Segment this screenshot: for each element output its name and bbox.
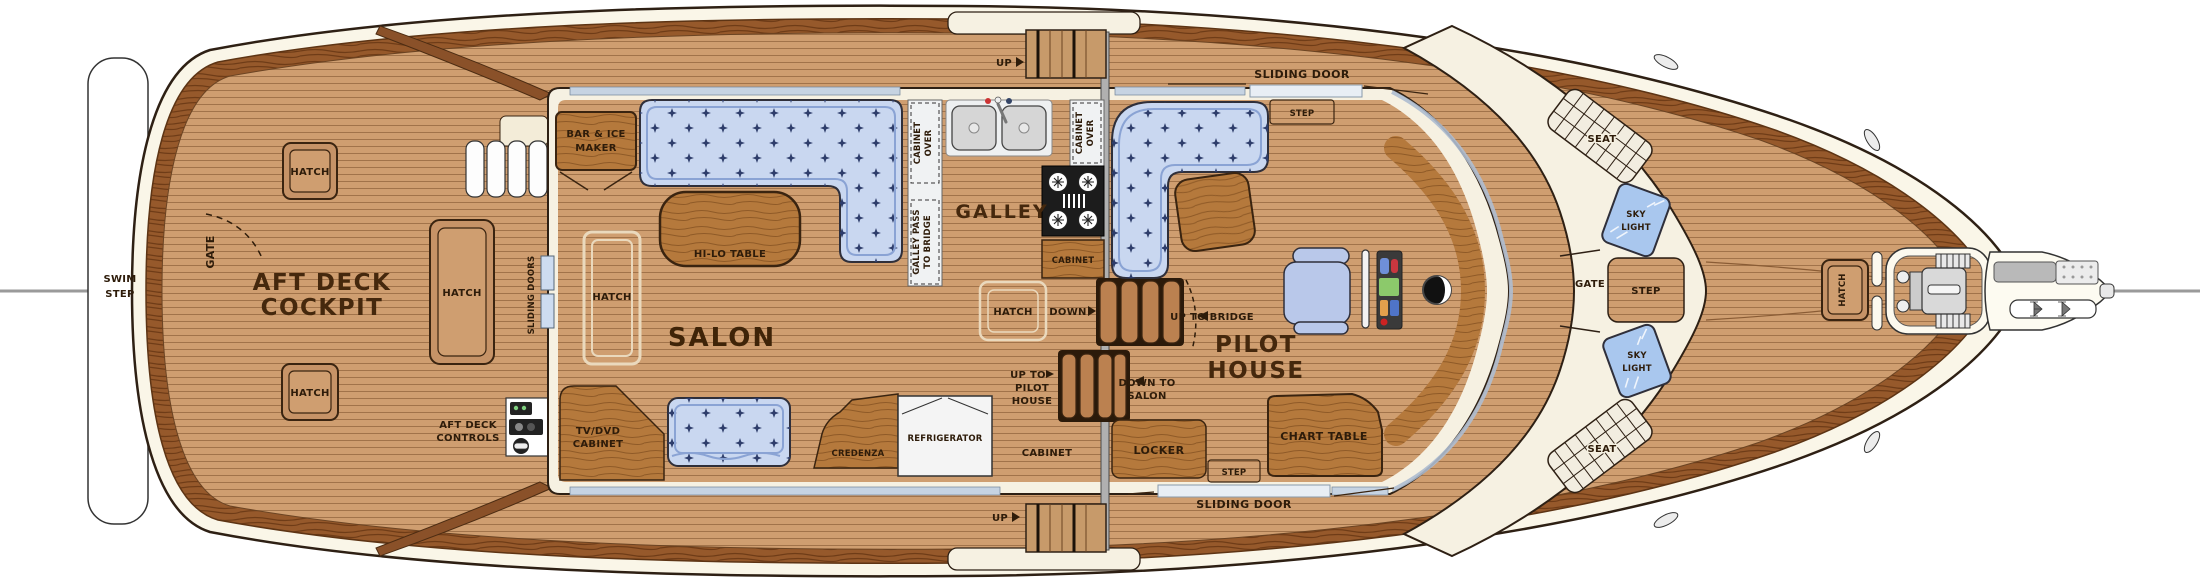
svg-text:HOUSE: HOUSE xyxy=(1207,358,1304,384)
compass xyxy=(1423,276,1451,304)
svg-text:CHART TABLE: CHART TABLE xyxy=(1280,430,1368,443)
svg-text:AFT DECK: AFT DECK xyxy=(439,420,497,431)
aft-hatch-side: HATCH xyxy=(430,220,494,364)
svg-text:HOUSE: HOUSE xyxy=(1012,396,1053,407)
svg-text:HATCH: HATCH xyxy=(442,288,481,299)
salon-windows-bottom xyxy=(570,487,1000,495)
svg-text:HATCH: HATCH xyxy=(592,292,631,303)
bow-pulpit xyxy=(1985,252,2114,330)
svg-text:CABINET: CABINET xyxy=(913,122,923,165)
svg-text:STEP: STEP xyxy=(1222,468,1247,478)
salon-sliding-doors: SLIDING DOORS xyxy=(527,256,554,335)
skylight-top-label: SKY xyxy=(1626,210,1646,220)
svg-text:HATCH: HATCH xyxy=(993,307,1032,318)
stove xyxy=(1042,166,1104,236)
bridge-gate-label: GATE xyxy=(1575,279,1605,290)
svg-text:GALLEY PASS: GALLEY PASS xyxy=(912,209,922,274)
down-to-salon-label: DOWN TO xyxy=(1118,378,1175,389)
anchor-windlass xyxy=(1872,248,1990,334)
up-to-bridge-label: UP TO BRIDGE xyxy=(1170,312,1254,323)
stern-gate-label: GATE xyxy=(204,235,217,268)
foredeck-hatch: HATCH xyxy=(1822,260,1868,320)
svg-text:CABINET: CABINET xyxy=(573,439,624,450)
pilothouse-step-bottom: STEP xyxy=(1208,460,1260,482)
skylight-bottom-label: SKY xyxy=(1627,351,1647,361)
bow-roller-tip xyxy=(2100,284,2114,298)
svg-text:STEP: STEP xyxy=(1290,109,1315,119)
svg-text:CABINET: CABINET xyxy=(1075,112,1085,155)
svg-text:SLIDING DOOR: SLIDING DOOR xyxy=(1254,68,1350,81)
svg-text:LIGHT: LIGHT xyxy=(1621,223,1650,233)
up-label-top: UP xyxy=(996,58,1012,69)
aft-hatch-top: HATCH xyxy=(283,143,337,199)
galley-cabinet: CABINET xyxy=(1042,240,1104,278)
seat-bottom-label: SEAT xyxy=(1587,444,1616,455)
pilothouse-table xyxy=(1173,171,1256,253)
svg-text:TO BRIDGE: TO BRIDGE xyxy=(923,215,933,269)
salon-title: SALON xyxy=(668,323,776,353)
pilothouse-windows-bottom xyxy=(1332,487,1388,495)
svg-text:REFRIGERATOR: REFRIGERATOR xyxy=(907,434,982,444)
svg-text:HI-LO TABLE: HI-LO TABLE xyxy=(694,249,766,260)
svg-text:HATCH: HATCH xyxy=(290,388,329,399)
midship-cabinet-label: CABINET xyxy=(1022,448,1073,459)
svg-text:LOCKER: LOCKER xyxy=(1134,444,1185,457)
svg-text:PILOT: PILOT xyxy=(1015,383,1049,394)
svg-text:COCKPIT: COCKPIT xyxy=(261,295,384,321)
down-label: DOWN xyxy=(1049,307,1086,318)
deck-cleat xyxy=(1652,510,1680,531)
pilot-house-title: PILOT xyxy=(1215,332,1297,358)
svg-text:LIGHT: LIGHT xyxy=(1622,364,1651,374)
salon-loveseat xyxy=(668,398,790,466)
helm-console xyxy=(1377,251,1402,329)
sliding-doors-label: SLIDING DOORS xyxy=(527,256,537,335)
bridge-step: STEP xyxy=(1608,258,1684,322)
svg-text:HATCH: HATCH xyxy=(290,167,329,178)
steering-wheel xyxy=(1362,250,1369,328)
locker: LOCKER xyxy=(1112,420,1206,478)
svg-text:STEP: STEP xyxy=(1631,286,1660,297)
up-to-pilot-label: UP TO xyxy=(1010,370,1046,381)
svg-text:STEP: STEP xyxy=(105,289,134,300)
up-label-bottom: UP xyxy=(992,513,1008,524)
bow-cleat xyxy=(1861,429,1882,455)
svg-text:MAKER: MAKER xyxy=(575,143,616,154)
chart-table: CHART TABLE xyxy=(1268,394,1382,476)
svg-text:CREDENZA: CREDENZA xyxy=(832,449,885,459)
svg-text:CABINET: CABINET xyxy=(1052,256,1095,266)
aft-deck-title: AFT DECK xyxy=(253,270,392,296)
svg-text:CONTROLS: CONTROLS xyxy=(436,433,499,444)
deck-plan: SWIM STEP GATE AFT DECK COCKPIT HATCH HA… xyxy=(0,0,2200,582)
galley-title: GALLEY xyxy=(955,201,1048,223)
svg-text:SALON: SALON xyxy=(1127,391,1166,402)
aft-hatch-bottom: HATCH xyxy=(282,364,338,420)
refrigerator: REFRIGERATOR xyxy=(898,396,992,476)
svg-text:OVER: OVER xyxy=(1086,119,1096,146)
seat-top-label: SEAT xyxy=(1587,134,1616,145)
yacht-main-deck-plan: SWIM STEP GATE AFT DECK COCKPIT HATCH HA… xyxy=(0,0,2200,582)
hilo-table: HI-LO TABLE xyxy=(660,192,800,266)
bow-cleat xyxy=(1861,127,1882,153)
pilothouse-windows-top xyxy=(1115,87,1245,95)
salon-windows-top xyxy=(570,87,900,95)
helm-chair xyxy=(1284,248,1350,334)
pilothouse-step-top: STEP xyxy=(1270,100,1334,124)
galley-sink xyxy=(946,97,1052,156)
svg-text:OVER: OVER xyxy=(924,129,934,156)
svg-text:BAR & ICE: BAR & ICE xyxy=(566,129,625,140)
svg-text:TV/DVD: TV/DVD xyxy=(576,426,620,437)
svg-text:SLIDING DOOR: SLIDING DOOR xyxy=(1196,498,1292,511)
swim-step-label: SWIM xyxy=(103,274,136,285)
deck-cleat xyxy=(1652,52,1680,73)
svg-text:HATCH: HATCH xyxy=(1838,273,1848,306)
